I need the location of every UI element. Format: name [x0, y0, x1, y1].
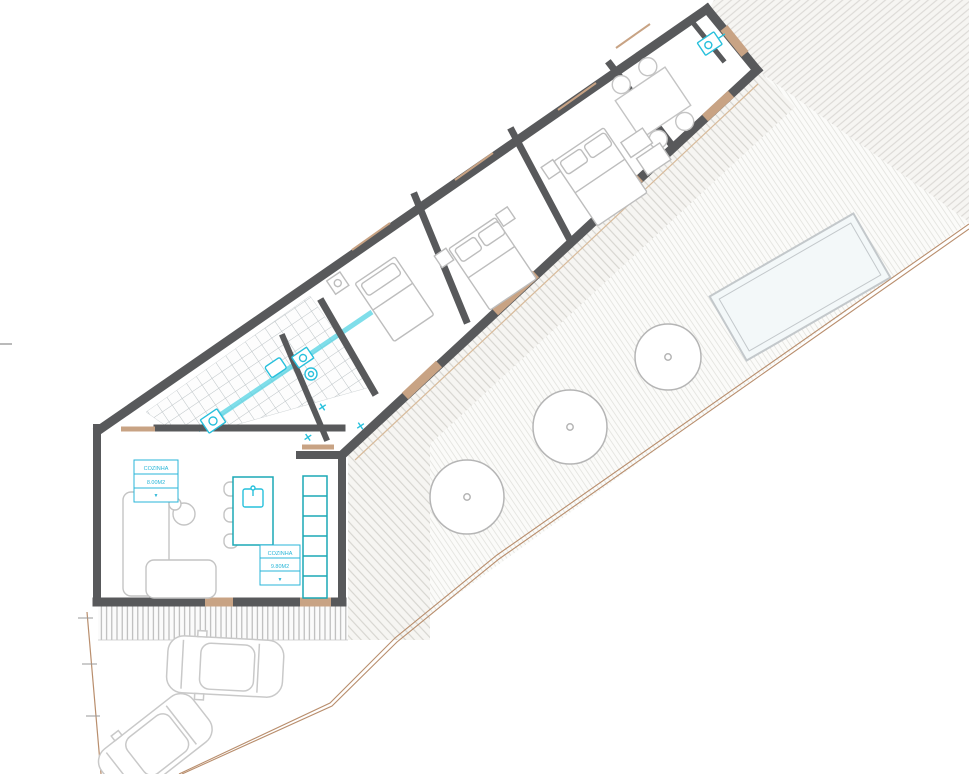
mirror [198, 631, 207, 637]
paving-band-south [98, 603, 348, 640]
mirror [194, 693, 203, 699]
room2-area: 9.80M2 [271, 564, 289, 570]
label-box-room1: COZINHA 8.00M2 ▼ [134, 460, 178, 502]
room2-arrow: ▼ [278, 577, 283, 583]
shelving-unit [303, 476, 327, 598]
floor-drain [305, 368, 317, 380]
room1-arrow: ▼ [154, 493, 159, 499]
tree [430, 460, 504, 534]
partition-bedroomB-bedroomC [512, 131, 570, 240]
floor-plan-page: COZINHA 8.00M2 ▼ COZINHA 9.80M2 ▼ [0, 0, 969, 774]
kitchen-sink [243, 486, 263, 507]
label-box-room2: COZINHA 9.80M2 ▼ [260, 545, 300, 585]
sofa [123, 492, 216, 598]
room1-area: 8.00M2 [147, 480, 165, 486]
floor-plan-drawing: COZINHA 8.00M2 ▼ COZINHA 9.80M2 ▼ [0, 0, 969, 774]
tree [533, 390, 607, 464]
car [165, 629, 284, 704]
room1-name: COZINHA [144, 466, 169, 472]
room2-name: COZINHA [268, 551, 293, 557]
tree [635, 324, 701, 390]
